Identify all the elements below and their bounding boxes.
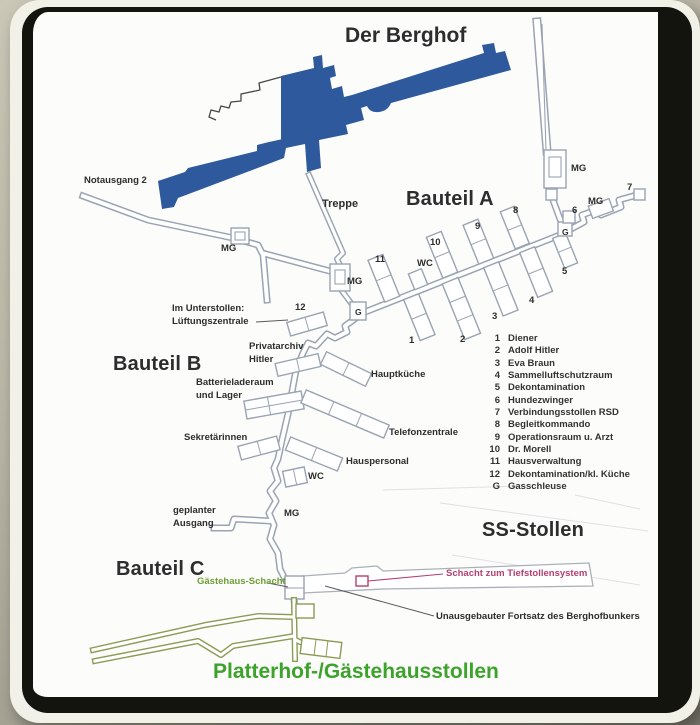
green-tunnels bbox=[93, 600, 342, 661]
label-geplanter-line1: geplanter bbox=[173, 505, 216, 518]
fortsatz-pointer bbox=[325, 586, 434, 616]
room-12 bbox=[287, 312, 327, 336]
map-title: Der Berghof bbox=[345, 30, 466, 43]
legend-row: 6 Hundezwinger bbox=[487, 395, 630, 407]
legend-number: 8 bbox=[487, 419, 500, 431]
label-room-11: 11 bbox=[375, 254, 385, 267]
label-mg-2: MG bbox=[347, 276, 362, 289]
legend-row: 10 Dr. Morell bbox=[487, 444, 630, 456]
legend-number: G bbox=[487, 481, 500, 493]
legend-row: 3 Eva Braun bbox=[487, 358, 630, 370]
legend-label: Hundezwinger bbox=[508, 395, 573, 407]
label-hauspersonal: Hauspersonal bbox=[346, 456, 409, 469]
label-geplanter-line2: Ausgang bbox=[173, 518, 216, 531]
mg-post-notausgang bbox=[231, 228, 249, 244]
room-2 bbox=[442, 278, 480, 340]
label-geplanter-ausgang: geplanter Ausgang bbox=[173, 505, 216, 530]
room-3 bbox=[484, 262, 518, 316]
legend-row: G Gasschleuse bbox=[487, 481, 630, 493]
label-room-10: 10 bbox=[430, 237, 441, 250]
legend-row: 5 Dekontamination bbox=[487, 382, 630, 394]
label-sekretaerinnen: Sekretärinnen bbox=[184, 432, 247, 445]
sketch-line bbox=[575, 495, 640, 509]
room-wc-b bbox=[283, 467, 308, 487]
label-batterieladeraum: Batterieladeraum und Lager bbox=[196, 377, 274, 402]
label-schacht-tiefstollen: Schacht zum Tiefstollensystem bbox=[446, 568, 587, 581]
legend-label: Dr. Morell bbox=[508, 444, 551, 456]
legend-row: 8 Begleitkommando bbox=[487, 419, 630, 431]
label-room-4: 4 bbox=[529, 295, 534, 308]
legend-label: Hausverwaltung bbox=[508, 456, 581, 468]
label-room-2: 2 bbox=[460, 334, 465, 347]
legend-label: Gasschleuse bbox=[508, 481, 567, 493]
label-privatarchiv: Privatarchiv Hitler bbox=[249, 341, 303, 366]
label-unterstollen: Im Unterstollen: Lüftungszentrale bbox=[172, 303, 249, 328]
section-ss-stollen: SS-Stollen bbox=[482, 524, 584, 537]
label-mg-5: MG bbox=[284, 508, 299, 521]
legend-label: Sammelluftschutzraum bbox=[508, 370, 613, 382]
legend-label: Operationsraum u. Arzt bbox=[508, 432, 613, 444]
legend-number: 7 bbox=[487, 407, 500, 419]
legend-label: Adolf Hitler bbox=[508, 345, 559, 357]
label-room-1: 1 bbox=[409, 335, 414, 348]
label-wc-a: WC bbox=[417, 258, 433, 271]
mg-post-top bbox=[544, 150, 566, 200]
label-room-3: 3 bbox=[492, 311, 497, 324]
legend-number: 6 bbox=[487, 395, 500, 407]
berghof-building bbox=[158, 43, 511, 209]
legend-row: 4 Sammelluftschutzraum bbox=[487, 370, 630, 382]
legend-row: 2 Adolf Hitler bbox=[487, 345, 630, 357]
label-notausgang: Notausgang 2 bbox=[84, 175, 147, 188]
label-batterie-line1: Batterieladeraum bbox=[196, 377, 274, 390]
label-mg-4: MG bbox=[588, 196, 603, 209]
label-room-6: 6 bbox=[572, 205, 577, 218]
room-telefonzentrale bbox=[301, 390, 389, 438]
legend-row: 9 Operationsraum u. Arzt bbox=[487, 432, 630, 444]
label-g-right: G bbox=[562, 226, 569, 239]
label-privatarchiv-line1: Privatarchiv bbox=[249, 341, 303, 354]
legend-number: 3 bbox=[487, 358, 500, 370]
room-1 bbox=[404, 294, 435, 341]
room-hauptkueche bbox=[320, 352, 371, 387]
unterstollen-pointer bbox=[256, 320, 288, 322]
legend-number: 12 bbox=[487, 469, 500, 481]
berghof-annex-outline bbox=[209, 77, 281, 120]
label-unterstollen-line1: Im Unterstollen: bbox=[172, 303, 249, 316]
label-privatarchiv-line2: Hitler bbox=[249, 354, 303, 367]
legend-number: 5 bbox=[487, 382, 500, 394]
label-wc-b: WC bbox=[308, 471, 324, 484]
label-unterstollen-line2: Lüftungszentrale bbox=[172, 316, 249, 329]
section-bauteil-c: Bauteil C bbox=[116, 563, 204, 576]
room-hauspersonal bbox=[285, 437, 342, 471]
room-4 bbox=[520, 247, 553, 297]
legend-label: Begleitkommando bbox=[508, 419, 590, 431]
section-platterhof: Platterhof-/Gästehausstollen bbox=[213, 666, 499, 679]
legend: 1 Diener 2 Adolf Hitler 3 Eva Braun 4 Sa… bbox=[487, 333, 630, 493]
label-room-7: 7 bbox=[627, 182, 632, 195]
legend-number: 1 bbox=[487, 333, 500, 345]
legend-label: Dekontamination/kl. Küche bbox=[508, 469, 630, 481]
label-treppe: Treppe bbox=[322, 198, 358, 211]
legend-label: Dekontamination bbox=[508, 382, 585, 394]
legend-row: 12 Dekontamination/kl. Küche bbox=[487, 469, 630, 481]
legend-number: 10 bbox=[487, 444, 500, 456]
label-hauptkueche: Hauptküche bbox=[371, 369, 425, 382]
corridor7-end bbox=[634, 189, 645, 200]
legend-row: 1 Diener bbox=[487, 333, 630, 345]
label-room-8: 8 bbox=[513, 205, 518, 218]
legend-row: 7 Verbindungsstollen RSD bbox=[487, 407, 630, 419]
legend-label: Eva Braun bbox=[508, 358, 555, 370]
legend-number: 11 bbox=[487, 456, 500, 468]
label-mg-3: MG bbox=[571, 163, 586, 176]
legend-row: 11 Hausverwaltung bbox=[487, 456, 630, 468]
section-bauteil-b: Bauteil B bbox=[113, 358, 201, 371]
label-gaestehaus-schacht: Gästehaus-Schacht bbox=[197, 576, 286, 589]
label-batterie-line2: und Lager bbox=[196, 390, 274, 403]
label-g-left: G bbox=[355, 306, 362, 319]
legend-label: Verbindungsstollen RSD bbox=[508, 407, 619, 419]
label-unausgebauter-fortsatz: Unausgebauter Fortsatz des Berghofbunker… bbox=[436, 611, 640, 624]
label-room-5: 5 bbox=[562, 266, 567, 279]
legend-number: 2 bbox=[487, 345, 500, 357]
berghof-left-wing bbox=[158, 139, 287, 209]
legend-label: Diener bbox=[508, 333, 538, 345]
legend-number: 9 bbox=[487, 432, 500, 444]
gaestehaus-shaft-box bbox=[285, 576, 304, 599]
label-mg-1: MG bbox=[221, 243, 236, 256]
berghof-bunker-map: { "colors":{ "building":"#2e5a9d", "corr… bbox=[0, 0, 700, 725]
label-telefonzentrale: Telefonzentrale bbox=[389, 427, 458, 440]
section-bauteil-a: Bauteil A bbox=[406, 193, 494, 206]
label-room-9: 9 bbox=[475, 221, 480, 234]
label-room-12: 12 bbox=[295, 302, 306, 315]
legend-number: 4 bbox=[487, 370, 500, 382]
